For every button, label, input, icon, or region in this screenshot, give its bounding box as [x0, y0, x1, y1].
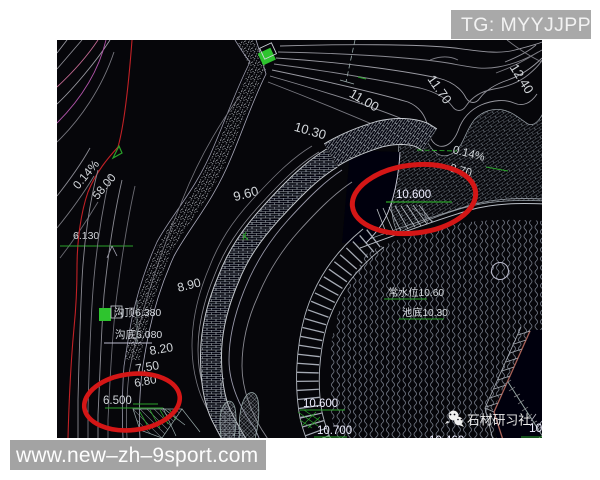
svg-text:石材研习社: 石材研习社 — [467, 413, 531, 428]
svg-text:沟顶6.380: 沟顶6.380 — [114, 306, 161, 319]
svg-text:TG: MYYJJPP: TG: MYYJJPP — [461, 14, 591, 36]
svg-text:池底10.30: 池底10.30 — [402, 306, 448, 319]
svg-text:常水位10.60: 常水位10.60 — [388, 286, 444, 299]
svg-text:沟底6.080: 沟底6.080 — [115, 328, 162, 341]
svg-text:10.600: 10.600 — [396, 189, 431, 201]
svg-text:www.new–zh–9sport.com: www.new–zh–9sport.com — [15, 444, 258, 467]
svg-text:6.500: 6.500 — [103, 395, 132, 407]
svg-text:10.700: 10.700 — [317, 425, 352, 437]
svg-text:10.600: 10.600 — [303, 398, 338, 410]
